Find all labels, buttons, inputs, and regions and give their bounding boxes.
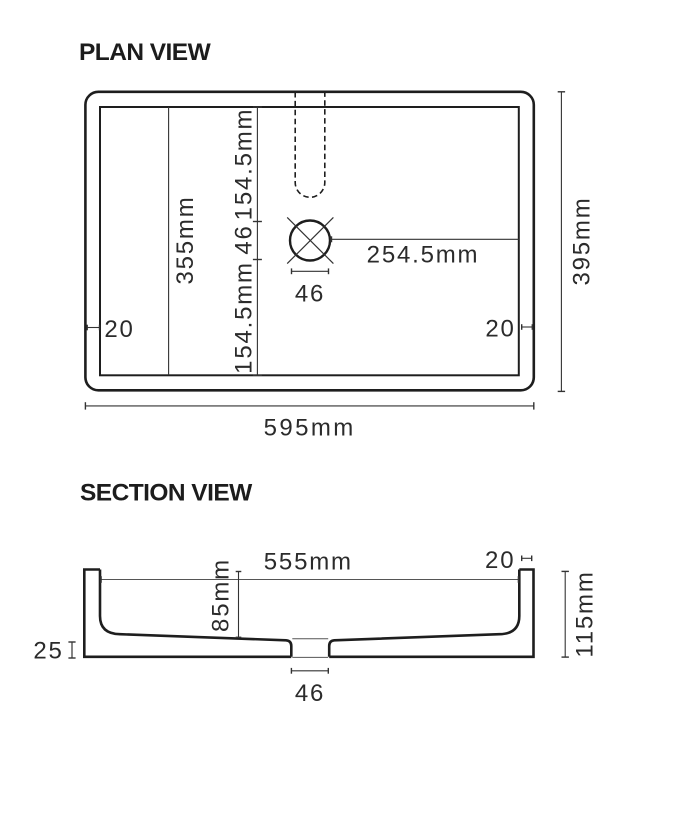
svg-text:154.5mm: 154.5mm — [231, 261, 258, 374]
svg-text:115mm: 115mm — [572, 570, 599, 657]
svg-text:20: 20 — [104, 316, 134, 343]
svg-text:20: 20 — [485, 547, 515, 574]
svg-text:46: 46 — [231, 224, 258, 254]
svg-text:154.5mm: 154.5mm — [231, 108, 258, 221]
svg-text:595mm: 595mm — [264, 415, 356, 442]
svg-text:395mm: 395mm — [569, 196, 596, 285]
svg-text:25: 25 — [33, 638, 63, 665]
svg-text:20: 20 — [485, 316, 515, 343]
svg-text:46: 46 — [295, 680, 325, 707]
svg-text:254.5mm: 254.5mm — [367, 242, 480, 269]
svg-text:555mm: 555mm — [264, 549, 353, 576]
svg-text:SECTION VIEW: SECTION VIEW — [80, 480, 253, 507]
svg-text:85mm: 85mm — [208, 558, 235, 632]
svg-text:PLAN VIEW: PLAN VIEW — [79, 39, 212, 66]
svg-text:46: 46 — [295, 281, 325, 308]
svg-text:355mm: 355mm — [172, 195, 199, 284]
